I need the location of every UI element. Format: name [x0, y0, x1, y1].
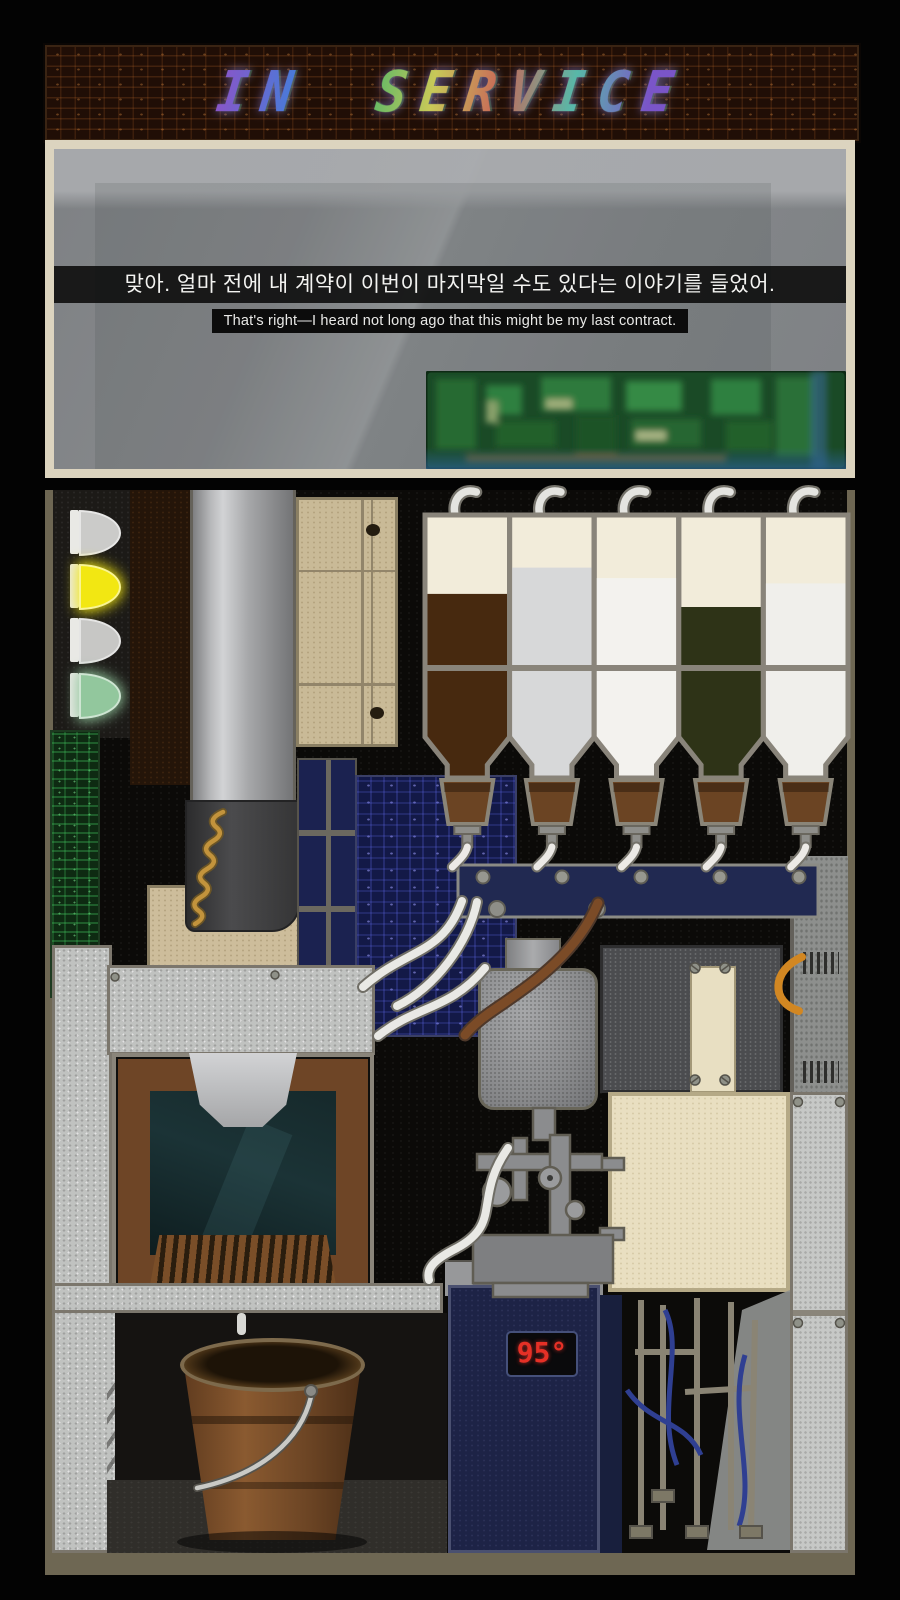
temperature-display: 95° — [506, 1331, 578, 1377]
dialogue-english-text: That's right—I heard not long ago that t… — [212, 309, 689, 333]
bucket-opening — [180, 1338, 365, 1392]
hopper-coffee-grounds[interactable] — [425, 491, 510, 867]
hopper-milk-powder[interactable] — [510, 491, 595, 867]
hopper-contents — [763, 583, 848, 778]
vent-slots — [803, 952, 839, 974]
boiler-side-panel — [600, 1295, 622, 1553]
hopper-contents — [510, 568, 595, 778]
vent-slots — [803, 1061, 839, 1083]
green-circuit-photo — [426, 371, 846, 469]
brew-unit-top — [107, 965, 375, 1055]
manifold-port — [589, 901, 605, 917]
dispenser-valve[interactable] — [454, 826, 480, 834]
hopper-sugar[interactable] — [594, 491, 679, 867]
dispenser-valve[interactable] — [539, 826, 565, 834]
frame-bottom — [45, 1553, 855, 1575]
dispenser-valve[interactable] — [793, 826, 819, 834]
access-panel[interactable] — [608, 1092, 790, 1292]
mixing-canister[interactable] — [478, 968, 598, 1110]
right-stone-column — [790, 1092, 848, 1553]
relay-cover-plate — [690, 966, 736, 1093]
hopper-tea-leaves[interactable] — [679, 491, 764, 867]
waste-bucket[interactable] — [180, 1338, 365, 1540]
hopper-contents — [594, 578, 679, 778]
ingredient-manifold — [458, 865, 818, 917]
dialogue-box[interactable]: 맞아. 얼마 전에 내 계약이 이번이 마지막일 수도 있다는 이야기를 들었어… — [45, 140, 855, 478]
dialogue-english-line: That's right—I heard not long ago that t… — [54, 309, 846, 335]
plumbing-bay — [622, 1290, 790, 1553]
brew-chamber[interactable] — [112, 1053, 374, 1293]
dispenser-valve[interactable] — [624, 826, 650, 834]
dialogue-korean-line: 맞아. 얼마 전에 내 계약이 이번이 마지막일 수도 있다는 이야기를 들었어… — [54, 266, 846, 303]
boiler[interactable]: 95° — [448, 1285, 600, 1553]
service-banner: IN SERVICE — [45, 45, 859, 141]
relay-block — [600, 945, 783, 1093]
stone-groove — [793, 1310, 845, 1316]
brew-unit-ledge — [52, 1283, 443, 1313]
banner-title: IN SERVICE — [213, 61, 690, 126]
mixer-inlet — [505, 938, 561, 972]
hopper-creamer[interactable] — [763, 491, 848, 867]
manifold-port — [489, 901, 505, 917]
hopper-bank — [45, 470, 855, 940]
drip-grate — [150, 1235, 336, 1285]
dispenser-valve[interactable] — [708, 826, 734, 834]
vending-machine-interior: 95° — [45, 490, 855, 1575]
